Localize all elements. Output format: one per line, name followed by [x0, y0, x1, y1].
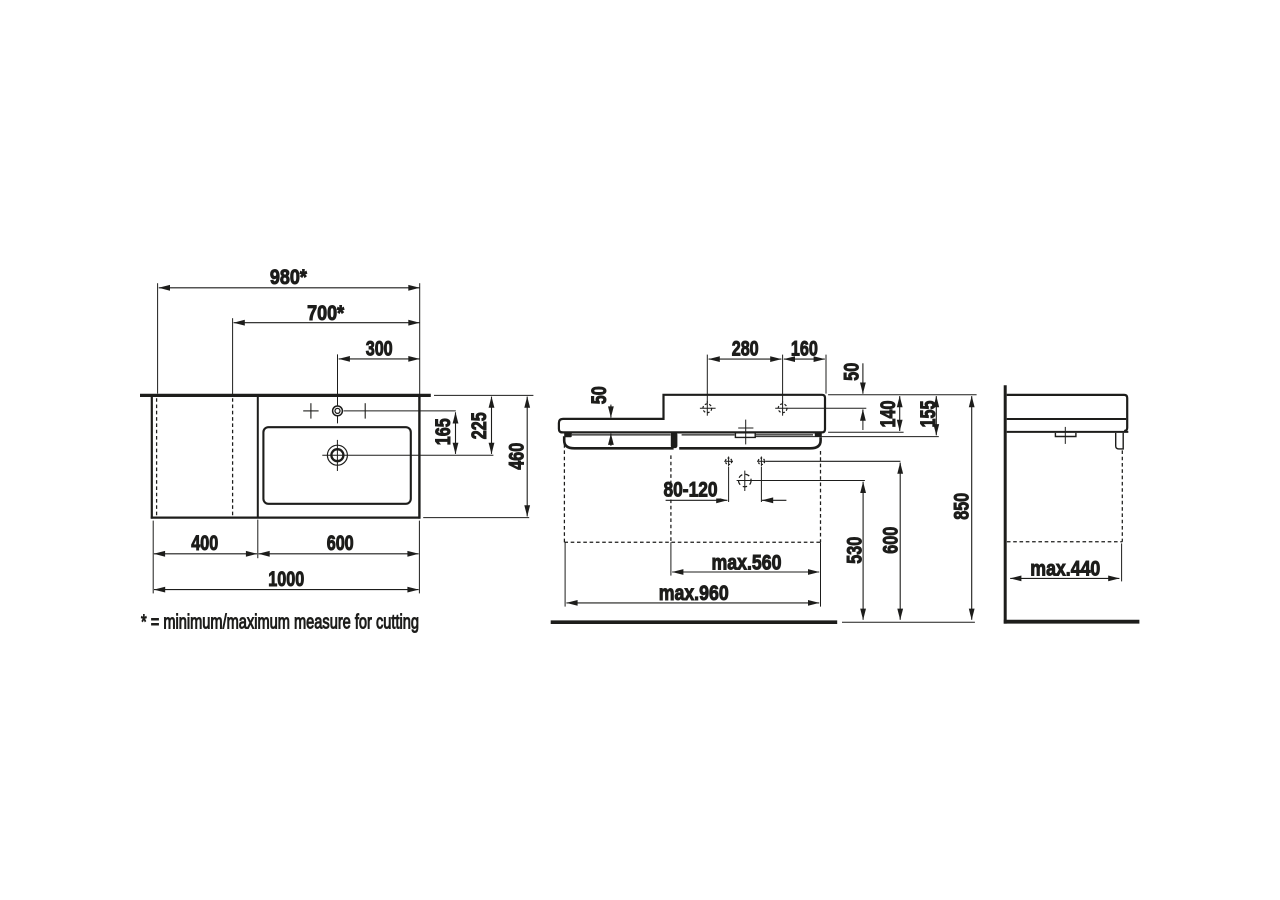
svg-text:160: 160	[791, 337, 818, 360]
svg-text:850: 850	[950, 493, 973, 520]
svg-text:50: 50	[588, 386, 611, 404]
svg-text:280: 280	[732, 337, 759, 360]
svg-text:80-120: 80-120	[664, 479, 718, 502]
svg-text:max.440: max.440	[1030, 558, 1100, 581]
svg-text:155: 155	[917, 400, 940, 427]
svg-text:460: 460	[506, 443, 529, 470]
svg-text:1000: 1000	[268, 568, 304, 591]
svg-text:max.560: max.560	[712, 551, 782, 574]
svg-text:165: 165	[432, 418, 455, 445]
svg-text:600: 600	[327, 532, 354, 555]
svg-text:600: 600	[880, 527, 903, 554]
svg-text:* = minimum/maximum measure fo: * = minimum/maximum measure for cutting	[141, 611, 419, 633]
svg-text:140: 140	[877, 401, 900, 428]
svg-text:980*: 980*	[270, 266, 308, 289]
svg-text:400: 400	[191, 532, 218, 555]
svg-text:300: 300	[366, 337, 393, 360]
svg-text:530: 530	[843, 537, 866, 564]
svg-text:50: 50	[840, 363, 863, 381]
svg-text:max.960: max.960	[659, 582, 729, 605]
svg-text:700*: 700*	[307, 302, 345, 325]
svg-text:225: 225	[468, 412, 491, 439]
